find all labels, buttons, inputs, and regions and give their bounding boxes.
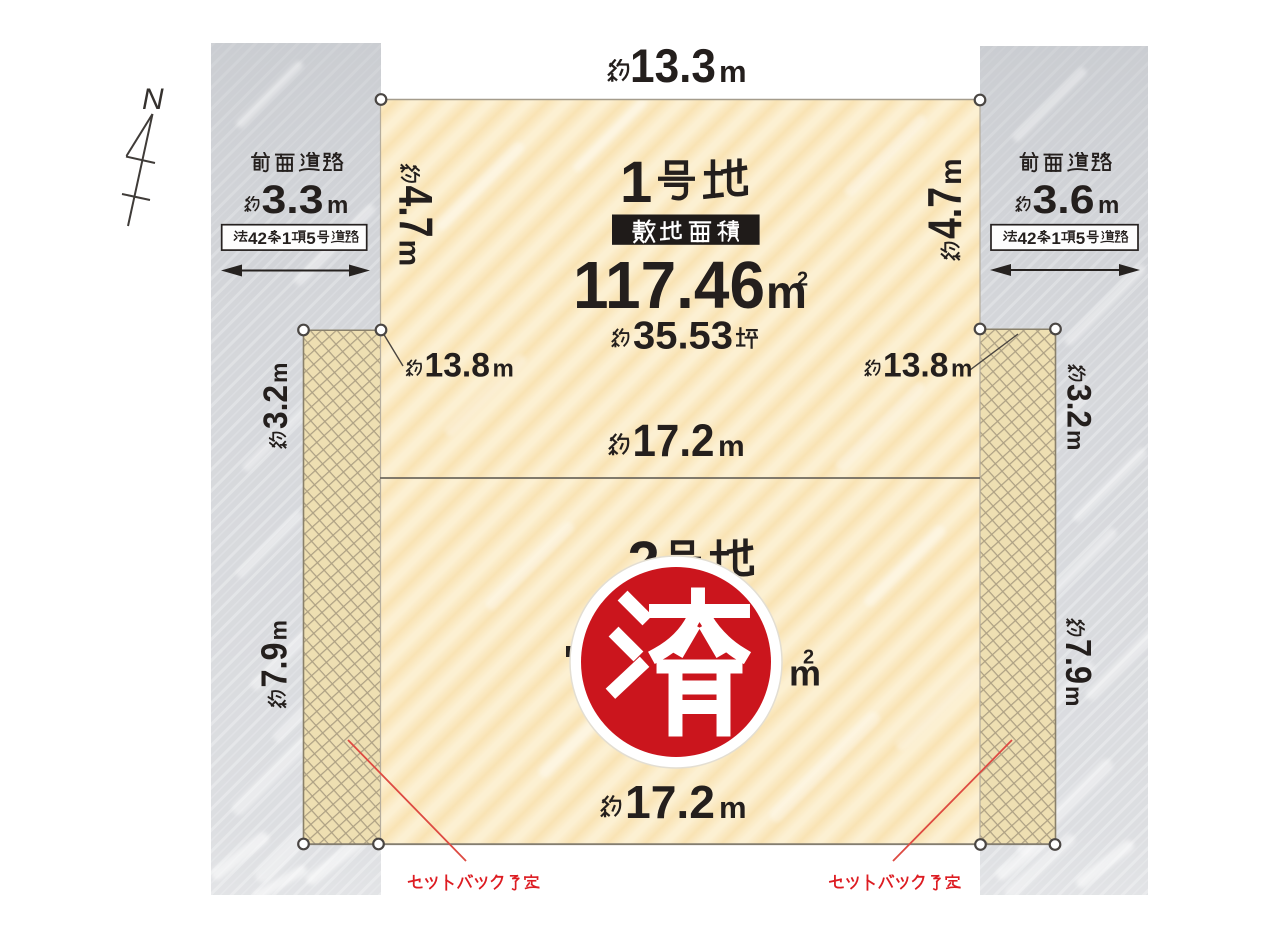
svg-text:m: m bbox=[719, 54, 747, 89]
svg-text:3.2: 3.2 bbox=[257, 385, 295, 429]
svg-text:1: 1 bbox=[1051, 229, 1060, 248]
svg-text:13.3: 13.3 bbox=[630, 39, 716, 92]
svg-text:13.8: 13.8 bbox=[425, 347, 491, 385]
svg-text:1: 1 bbox=[282, 229, 291, 248]
svg-text:4.7: 4.7 bbox=[918, 187, 971, 239]
svg-text:117.46: 117.46 bbox=[573, 248, 765, 323]
svg-text:3.2: 3.2 bbox=[1060, 384, 1098, 428]
svg-text:7.9: 7.9 bbox=[254, 643, 295, 688]
svg-text:7.9: 7.9 bbox=[1058, 639, 1099, 684]
svg-text:m: m bbox=[1063, 430, 1089, 450]
svg-text:m: m bbox=[1061, 686, 1087, 706]
svg-text:m: m bbox=[493, 356, 514, 383]
svg-text:m: m bbox=[266, 620, 292, 640]
svg-text:m: m bbox=[393, 240, 426, 267]
svg-text:42: 42 bbox=[1018, 229, 1037, 248]
svg-text:m: m bbox=[719, 790, 747, 825]
svg-text:1: 1 bbox=[620, 150, 652, 215]
svg-text:35.53: 35.53 bbox=[633, 315, 733, 358]
svg-text:N: N bbox=[142, 83, 164, 116]
svg-text:m: m bbox=[951, 356, 972, 383]
svg-text:m: m bbox=[327, 192, 348, 219]
svg-text:5: 5 bbox=[306, 229, 315, 248]
svg-text:13.8: 13.8 bbox=[883, 347, 949, 385]
svg-text:3.3: 3.3 bbox=[262, 178, 324, 222]
svg-text:m: m bbox=[1098, 192, 1119, 219]
svg-text:m: m bbox=[718, 430, 745, 463]
svg-text:2: 2 bbox=[797, 269, 808, 291]
svg-text:17.2: 17.2 bbox=[625, 776, 715, 828]
svg-text:42: 42 bbox=[248, 229, 267, 248]
svg-text:17.2: 17.2 bbox=[633, 415, 715, 466]
svg-text:4.7: 4.7 bbox=[390, 186, 443, 238]
svg-text:m: m bbox=[935, 158, 968, 185]
svg-text:m: m bbox=[266, 363, 292, 383]
svg-text:3.6: 3.6 bbox=[1033, 178, 1095, 222]
svg-text:5: 5 bbox=[1076, 229, 1085, 248]
svg-text:2: 2 bbox=[803, 647, 814, 669]
